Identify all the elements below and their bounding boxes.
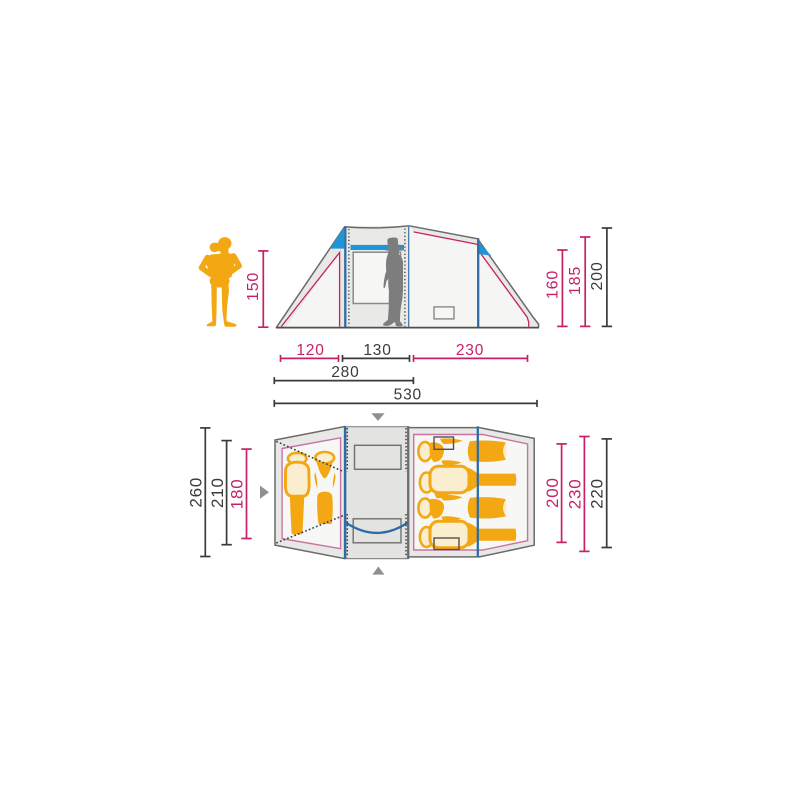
svg-text:200: 200 — [543, 477, 562, 508]
svg-text:230: 230 — [456, 342, 484, 359]
svg-text:150: 150 — [245, 272, 262, 301]
svg-text:200: 200 — [589, 261, 606, 290]
svg-text:210: 210 — [208, 477, 227, 508]
svg-text:130: 130 — [363, 342, 391, 359]
svg-text:185: 185 — [567, 266, 584, 295]
svg-text:280: 280 — [331, 364, 359, 381]
svg-text:230: 230 — [566, 479, 585, 510]
svg-text:260: 260 — [187, 477, 206, 508]
svg-text:180: 180 — [228, 478, 247, 509]
svg-text:530: 530 — [394, 386, 422, 403]
svg-text:160: 160 — [544, 270, 561, 299]
svg-text:220: 220 — [588, 478, 607, 509]
svg-text:120: 120 — [296, 342, 324, 359]
